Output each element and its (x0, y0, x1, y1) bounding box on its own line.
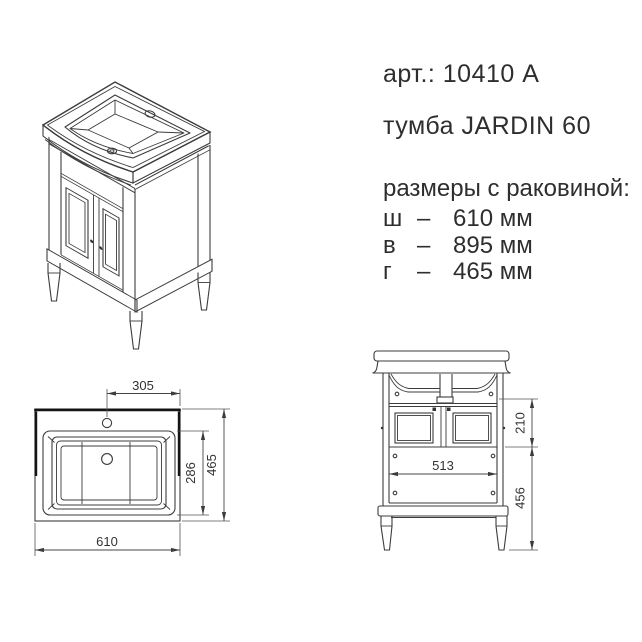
iso-front-face (47, 136, 137, 312)
iso-legs (48, 263, 210, 349)
dimension-row-height: в–895 мм (383, 233, 533, 260)
front-sink (373, 351, 511, 373)
top-view-outline (34, 409, 181, 521)
front-left-door (395, 413, 433, 443)
top-drain-hole (102, 454, 113, 465)
dim-label-286: 286 (183, 462, 198, 484)
dimensions-list: ш–610 мм в–895 мм г–465 мм (383, 206, 533, 286)
top-faucet-hole (102, 418, 111, 427)
dim-letter: ш (383, 206, 417, 233)
dim-letter: г (383, 259, 417, 286)
front-base-rail (378, 506, 508, 516)
dimension-row-depth: г–465 мм (383, 259, 533, 286)
dim-label-456: 456 (513, 487, 528, 509)
front-view-dimensions: 513 210 456 (389, 399, 538, 550)
iso-door-knob (99, 246, 102, 251)
sink-top-view: 305 286 465 610 (25, 380, 245, 585)
dim-value: 895 мм (453, 233, 533, 260)
iso-side-face (135, 144, 212, 312)
top-view-dimensions: 305 286 465 610 (35, 378, 230, 556)
dim-label-210: 210 (513, 412, 528, 434)
product-name: тумба JARDIN 60 (383, 112, 591, 141)
dim-dash: – (417, 233, 453, 260)
iso-door-knob (90, 239, 93, 244)
dimensions-title: размеры с раковиной: (383, 175, 630, 203)
dim-dash: – (417, 259, 453, 286)
dim-label-305: 305 (132, 378, 154, 393)
spec-sheet-page: { "product": { "art_label": "арт.: 10410… (0, 0, 642, 642)
front-right-leg (496, 516, 507, 550)
dim-label-465: 465 (204, 454, 219, 476)
dim-value: 610 мм (453, 206, 533, 233)
cabinet-front-view: 513 210 456 (360, 340, 560, 568)
dim-label-513: 513 (432, 458, 454, 473)
dim-letter: в (383, 233, 417, 260)
front-door-gap (441, 407, 446, 447)
front-basin-section (389, 375, 497, 392)
iso-front-right-leg (130, 311, 142, 349)
iso-front-left-leg (48, 263, 60, 301)
dim-label-610: 610 (96, 534, 118, 549)
front-right-door (453, 413, 491, 443)
front-drain-pipe (440, 374, 452, 397)
front-left-leg (381, 516, 392, 550)
iso-sink-top (43, 82, 210, 185)
isometric-view (28, 68, 233, 358)
dim-value: 465 мм (453, 259, 533, 286)
article-number: арт.: 10410 A (383, 60, 539, 89)
dim-dash: – (417, 206, 453, 233)
dimension-row-width: ш–610 мм (383, 206, 533, 233)
iso-faucet-hole (144, 110, 155, 118)
